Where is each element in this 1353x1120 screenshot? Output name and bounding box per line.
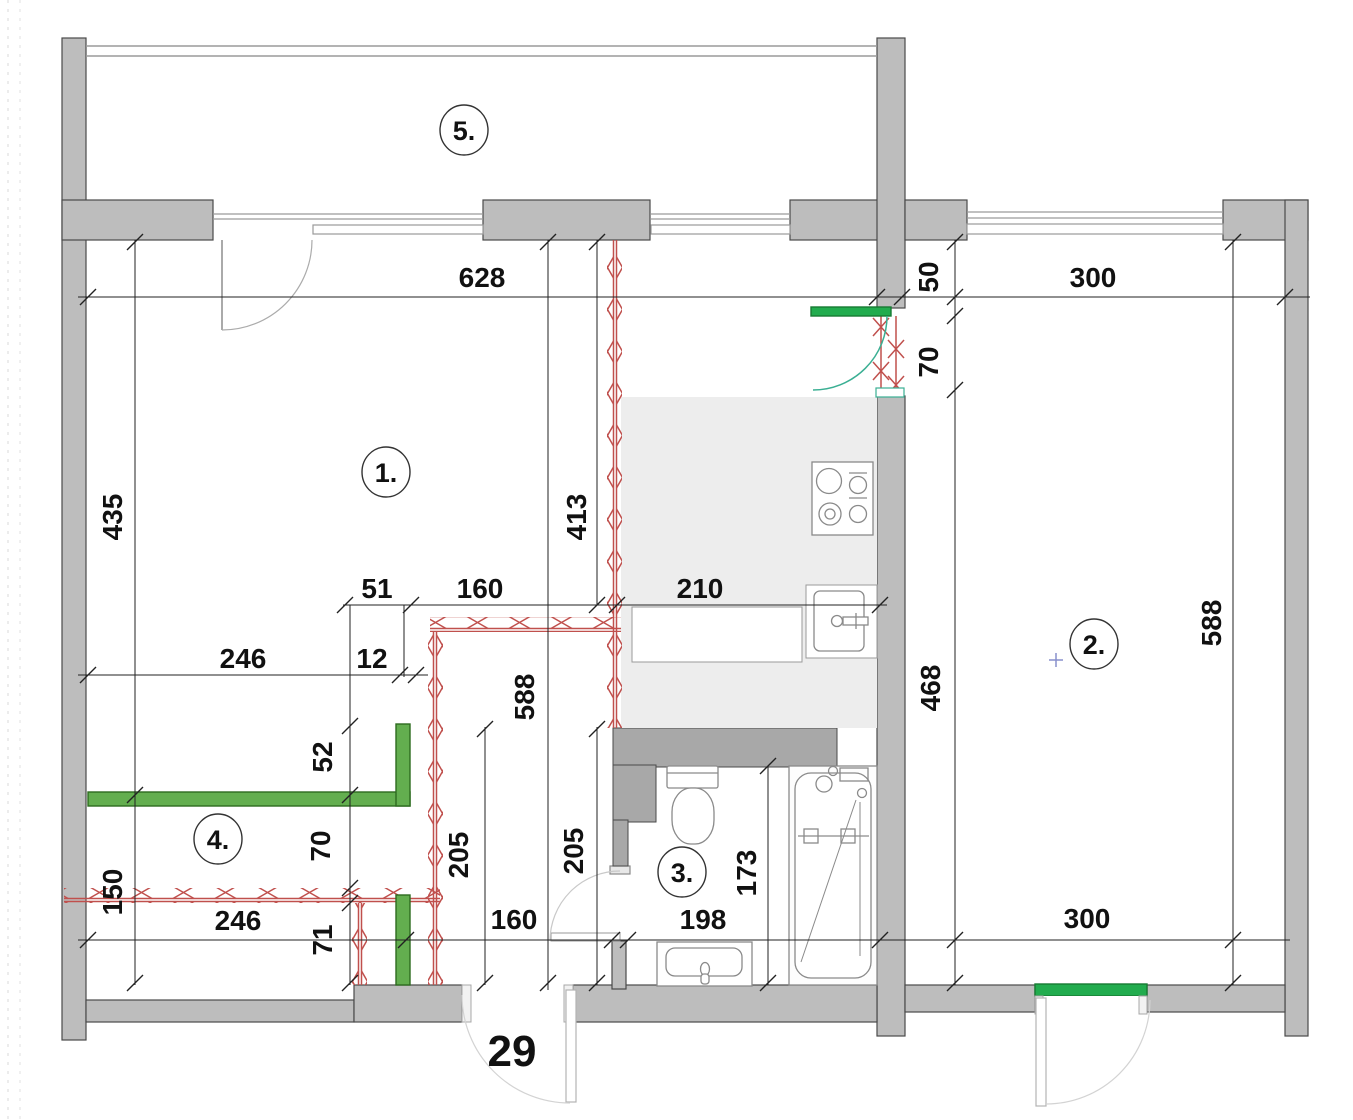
wall-top-room1-left bbox=[62, 200, 213, 240]
dim-150: 150 bbox=[97, 869, 128, 916]
dim-160-mid: 160 bbox=[457, 573, 504, 604]
dim-588-right: 588 bbox=[1196, 600, 1227, 647]
window-kitchen-balcony bbox=[651, 214, 790, 234]
bathtub-icon bbox=[789, 766, 877, 985]
wall-bottom-bath bbox=[573, 985, 877, 1022]
svg-text:4.: 4. bbox=[207, 825, 230, 855]
dim-51: 51 bbox=[361, 573, 392, 604]
kitchen-counter bbox=[632, 607, 802, 662]
dim-210: 210 bbox=[677, 573, 724, 604]
room-label-3: 3. bbox=[658, 847, 706, 897]
dim-435: 435 bbox=[97, 494, 128, 541]
toilet-icon bbox=[667, 766, 718, 844]
new-lintel-room2-balcony-door bbox=[1035, 984, 1147, 996]
dim-205-right: 205 bbox=[558, 828, 589, 875]
wall-bottom-room2-left bbox=[905, 985, 1035, 1012]
wall-middle-upper bbox=[877, 38, 905, 308]
kitchen-sink-icon bbox=[814, 591, 868, 651]
new-wall-hall-vertical bbox=[396, 724, 410, 806]
door-room1-balcony bbox=[222, 240, 312, 330]
balcony-rail bbox=[86, 46, 877, 56]
dim-70-mid: 70 bbox=[305, 830, 336, 861]
dim-628: 628 bbox=[459, 262, 506, 293]
door-kitchen bbox=[813, 316, 904, 397]
window-room2 bbox=[967, 212, 1223, 234]
wall-bottom-room2-right bbox=[1147, 985, 1285, 1012]
dim-52: 52 bbox=[307, 741, 338, 772]
dim-300-bottom: 300 bbox=[1064, 903, 1111, 934]
bathroom-sink-icon bbox=[657, 942, 752, 986]
page-margin-guides bbox=[8, 0, 20, 1120]
svg-text:1.: 1. bbox=[375, 458, 398, 488]
dim-413: 413 bbox=[561, 494, 592, 541]
dim-300-top: 300 bbox=[1070, 262, 1117, 293]
door-jamb-bathroom bbox=[610, 866, 630, 874]
dim-50: 50 bbox=[913, 261, 944, 292]
floor-plan-drawing: 628 50 300 70 435 413 51 160 210 588 246… bbox=[0, 0, 1353, 1120]
demolished-wall-kitchen-vertical bbox=[607, 240, 622, 728]
dim-588-left: 588 bbox=[509, 674, 540, 721]
wall-bathroom-left bbox=[612, 941, 626, 989]
svg-text:5.: 5. bbox=[453, 116, 476, 146]
new-lintel-kitchen-door bbox=[811, 307, 891, 316]
room-label-1: 1. bbox=[362, 447, 410, 497]
window-room1-balcony bbox=[213, 214, 483, 234]
dim-173: 173 bbox=[731, 850, 762, 897]
room2-center-mark bbox=[1049, 653, 1063, 667]
dim-70-top: 70 bbox=[913, 346, 944, 377]
floor-plan-canvas: 628 50 300 70 435 413 51 160 210 588 246… bbox=[0, 0, 1353, 1120]
stove-icon bbox=[812, 462, 873, 535]
demolished-wall-kitchen-door bbox=[873, 316, 904, 394]
apartment-number: 29 bbox=[488, 1027, 537, 1076]
dim-246-top: 246 bbox=[220, 643, 267, 674]
dim-12: 12 bbox=[356, 643, 387, 674]
dim-468: 468 bbox=[915, 665, 946, 712]
door-bathroom bbox=[550, 871, 620, 941]
wall-bottom-left bbox=[86, 1000, 354, 1022]
room-label-5: 5. bbox=[440, 105, 488, 155]
room-label-4: 4. bbox=[194, 814, 242, 864]
svg-text:2.: 2. bbox=[1083, 630, 1106, 660]
dim-205-left: 205 bbox=[443, 832, 474, 879]
demolished-wall-corridor-vertical bbox=[428, 631, 443, 985]
wall-top-room1-right bbox=[483, 200, 650, 240]
dim-198: 198 bbox=[680, 904, 727, 935]
demolished-wall-bottom-vertical bbox=[352, 903, 367, 985]
room-label-2: 2. bbox=[1070, 619, 1118, 669]
wall-right-outer bbox=[1285, 200, 1308, 1036]
wall-bottom-mid bbox=[354, 985, 462, 1022]
demolished-wall-mid-horizontal bbox=[430, 617, 621, 632]
dim-160-bottom: 160 bbox=[491, 904, 538, 935]
door-room2-balcony bbox=[1035, 996, 1150, 1106]
wall-top-room2-left bbox=[905, 200, 967, 240]
kitchen-counter-zone bbox=[621, 397, 877, 728]
dim-246-bottom: 246 bbox=[215, 905, 262, 936]
svg-text:3.: 3. bbox=[671, 858, 694, 888]
dim-71: 71 bbox=[307, 924, 338, 955]
